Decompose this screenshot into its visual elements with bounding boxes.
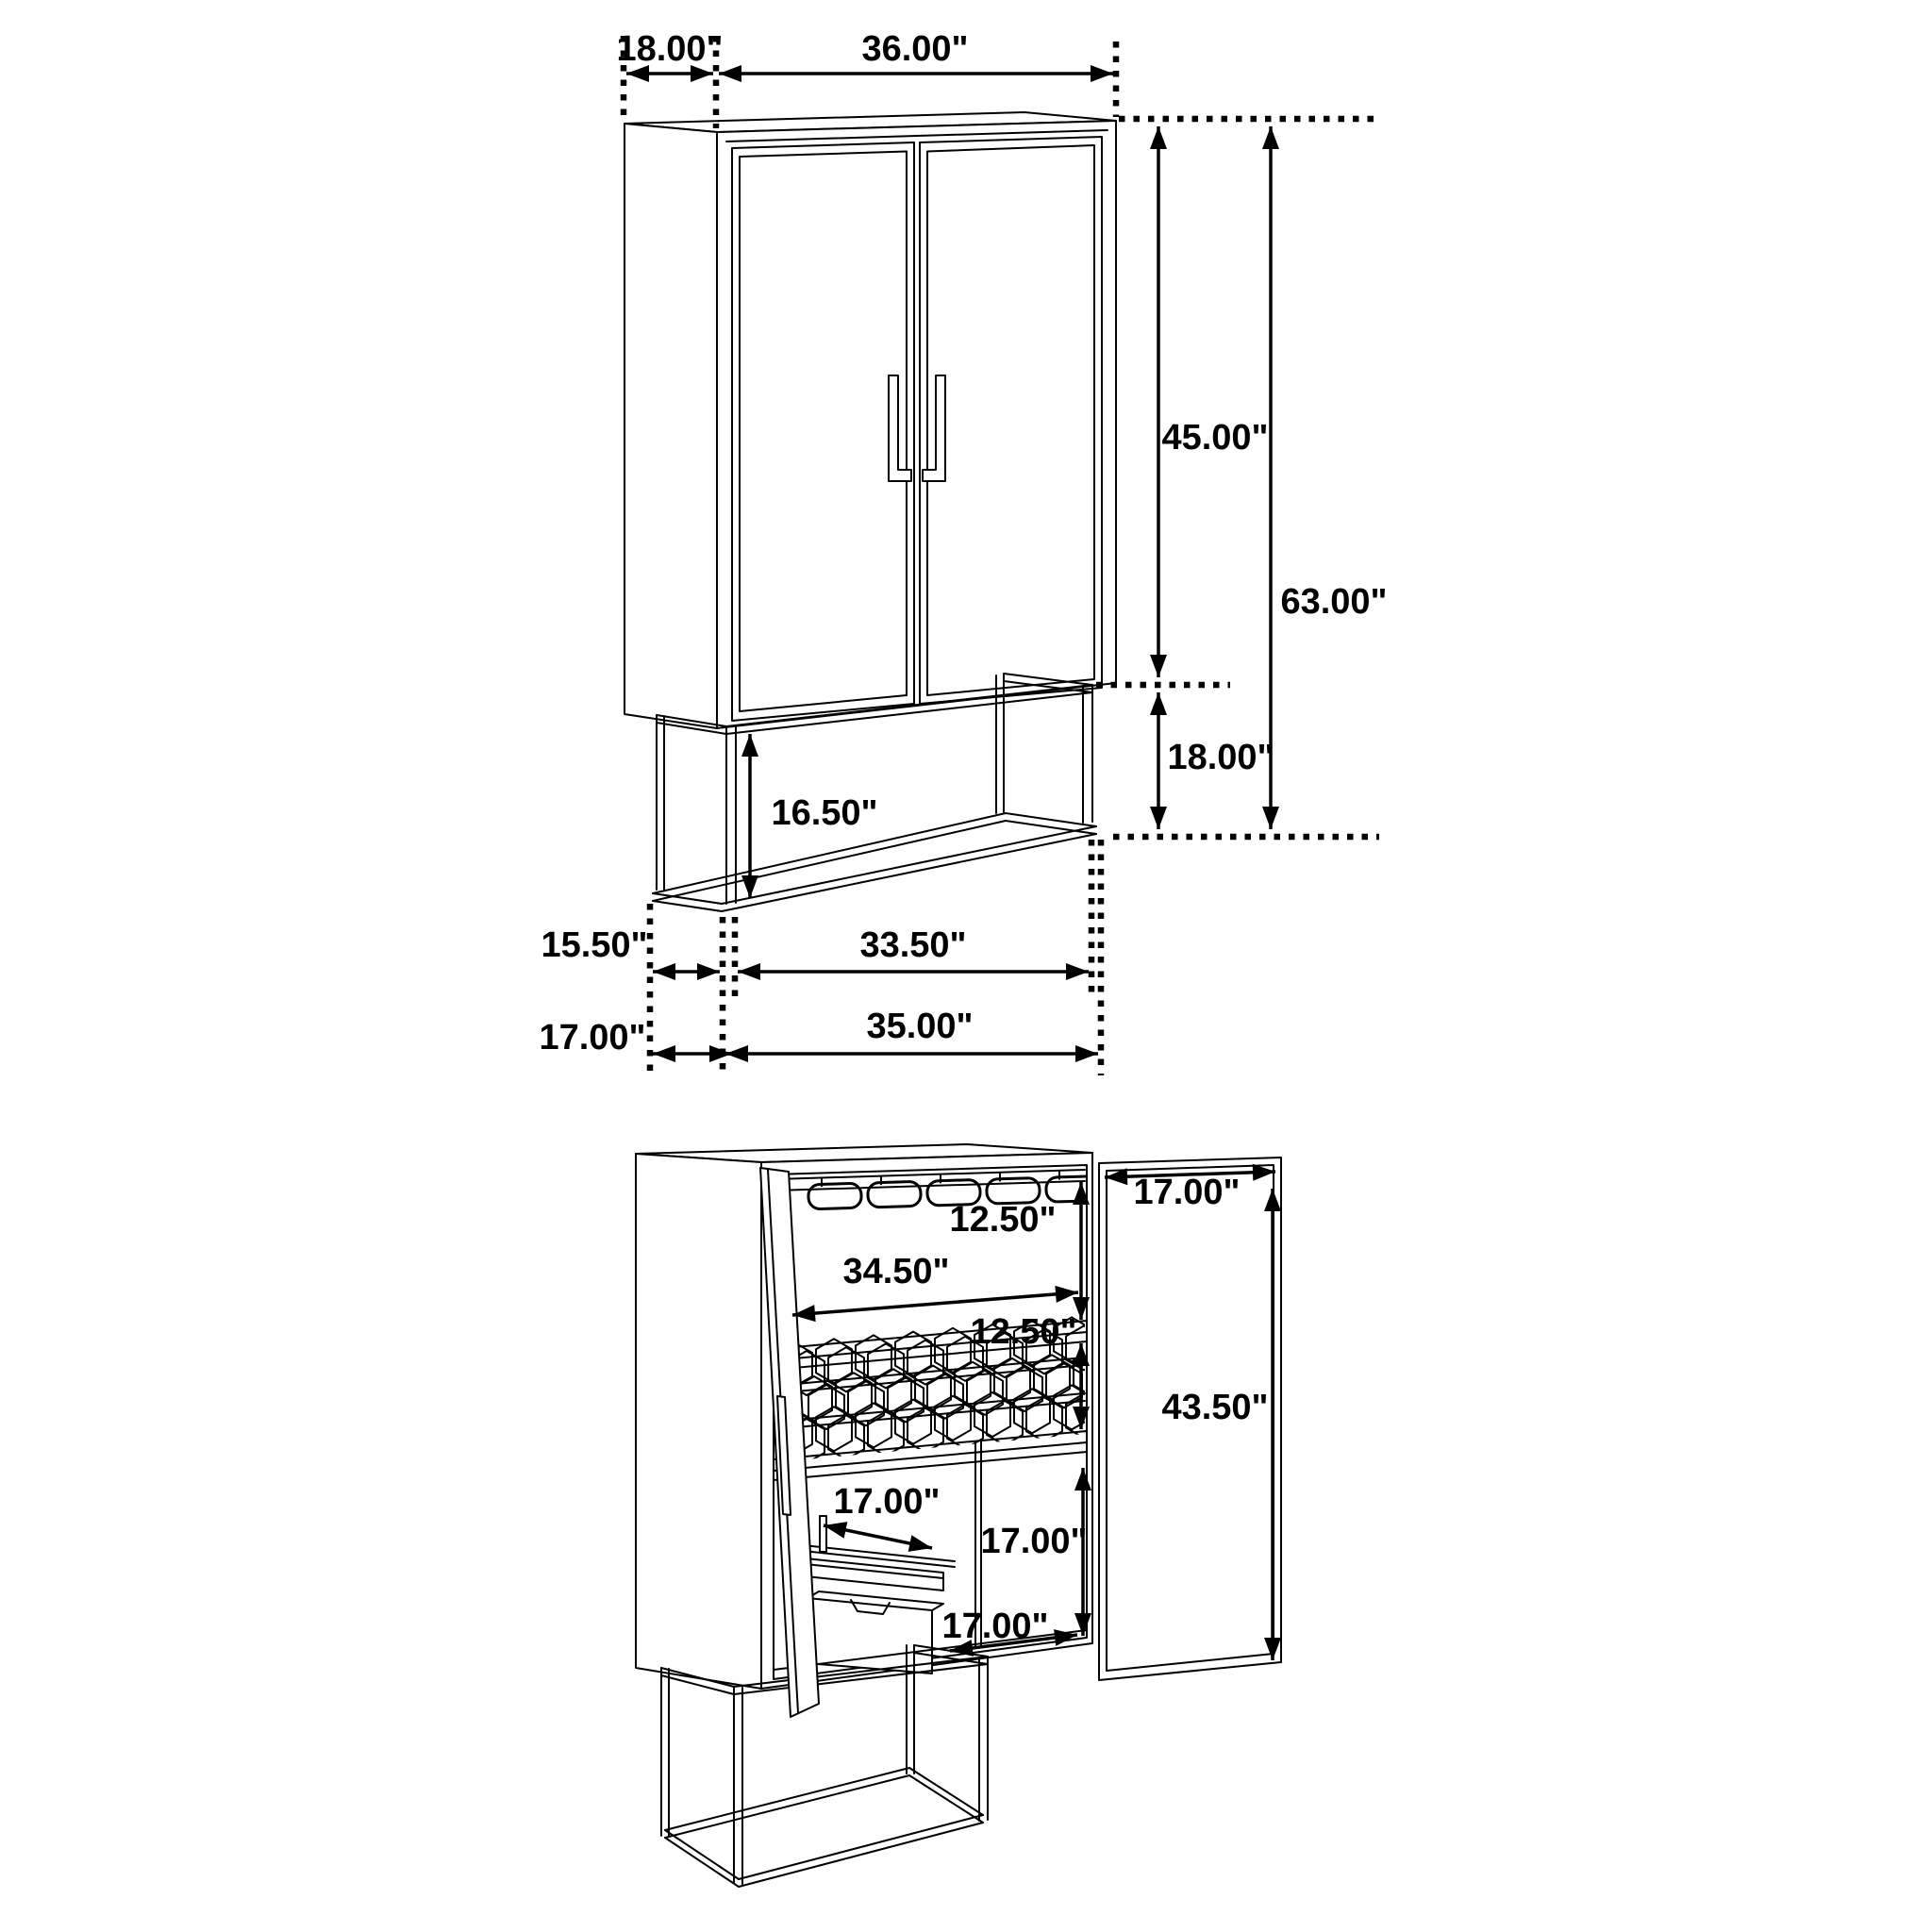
- drawing-canvas: 18.00" 36.00" 45.00" 63.00" 18.00" 16.50…: [0, 0, 1932, 1932]
- dim-label-top-width: 36.00": [861, 29, 968, 69]
- dim-label-door-width: 17.00": [1133, 1173, 1240, 1212]
- dim-label-base-inner-width: 33.50": [859, 925, 966, 965]
- dim-label-floor-depth: 17.00": [941, 1607, 1048, 1646]
- dim-label-door-height: 43.50": [1161, 1388, 1268, 1427]
- dim-label-top-depth: 18.00": [616, 29, 723, 69]
- view-closed-cabinet: 18.00" 36.00" 45.00" 63.00" 18.00" 16.50…: [539, 29, 1387, 1075]
- drawer: [808, 1591, 943, 1674]
- dim-label-tray-width: 17.00": [833, 1482, 940, 1522]
- dim-label-overall-height: 63.00": [1280, 582, 1387, 622]
- cabinet-front-face: [717, 121, 1116, 728]
- dim-label-lower-height: 17.00": [980, 1522, 1087, 1561]
- dim-label-upper-height: 45.00": [1161, 418, 1268, 458]
- dim-label-base-width: 35.00": [866, 1007, 973, 1046]
- dim-label-shelf-width: 34.50": [842, 1252, 949, 1291]
- view-open-cabinet: 12.50" 34.50" 12.50" 17.00" 43.50" 17.00…: [636, 1144, 1281, 1887]
- open-cabinet-left-side: [636, 1154, 761, 1689]
- bar-cabinet-dimension-drawing: 18.00" 36.00" 45.00" 63.00" 18.00" 16.50…: [0, 0, 1932, 1932]
- dim-label-base-depth: 17.00": [539, 1018, 645, 1058]
- dim-label-stemware-height: 12.50": [949, 1200, 1056, 1240]
- dim-label-base-opening-height: 16.50": [771, 793, 877, 833]
- dim-label-base-height: 18.00": [1167, 738, 1274, 777]
- cabinet-left-side: [625, 124, 717, 728]
- cabinet-body: [625, 112, 1116, 728]
- dim-label-winerack-height: 12.50": [970, 1312, 1076, 1352]
- open-view-base: [661, 1645, 988, 1887]
- dim-label-base-inner-depth: 15.50": [541, 925, 647, 965]
